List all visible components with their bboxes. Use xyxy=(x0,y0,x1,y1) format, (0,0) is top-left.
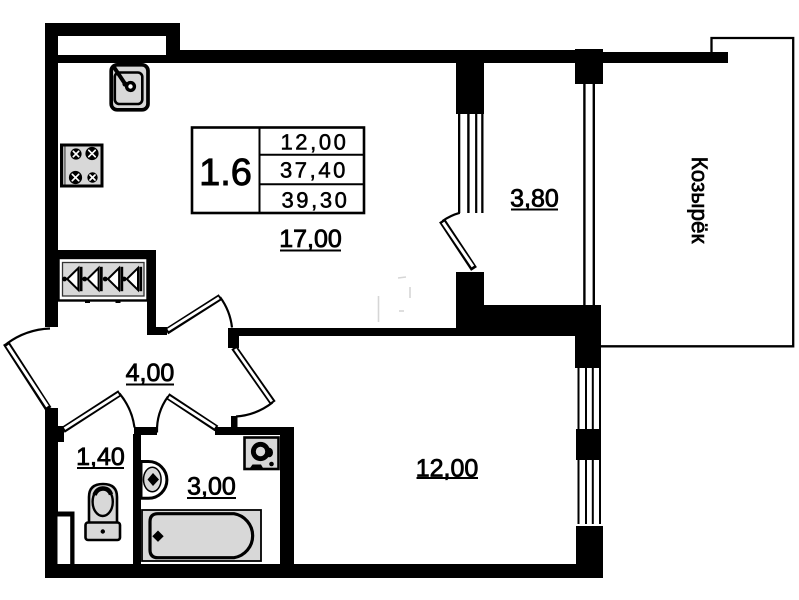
svg-text:3,80: 3,80 xyxy=(510,185,559,213)
svg-text:37,40: 37,40 xyxy=(280,158,348,183)
svg-text:1,40: 1,40 xyxy=(76,443,125,471)
svg-text:12,00: 12,00 xyxy=(280,130,348,155)
svg-text:17,00: 17,00 xyxy=(279,225,342,253)
svg-text:Козырёк: Козырёк xyxy=(687,157,712,244)
svg-text:4,00: 4,00 xyxy=(126,359,175,387)
svg-text:39,30: 39,30 xyxy=(281,188,349,213)
svg-text:3,00: 3,00 xyxy=(187,473,236,501)
svg-text:1.6: 1.6 xyxy=(199,152,252,194)
